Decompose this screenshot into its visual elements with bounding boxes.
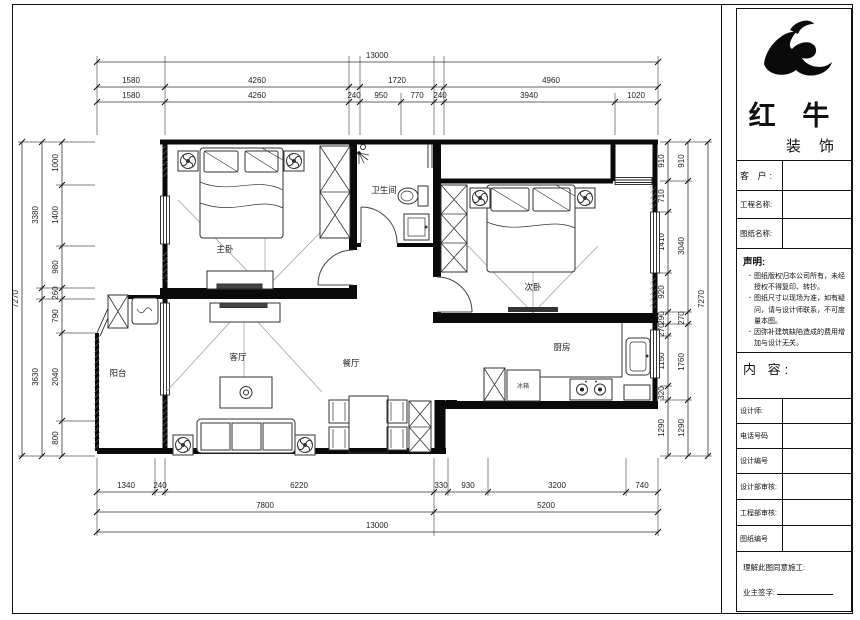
brand-name: 红 牛 — [737, 94, 851, 133]
balcony-fixtures — [108, 295, 158, 328]
dim-label: 1290 — [677, 419, 686, 437]
dim-label: 3380 — [31, 206, 40, 224]
content-label: 内 容: — [743, 362, 792, 377]
statement-item: 图纸尺寸以现场为准，如有疑问，请与设计师联系，不可度量本图。 — [749, 293, 847, 327]
room-label-kitchen: 厨房 — [553, 342, 570, 352]
dim-label: 3200 — [548, 481, 566, 490]
room-label-bath: 卫生间 — [371, 185, 397, 195]
bull-logo — [744, 15, 844, 87]
dim-label: 770 — [410, 91, 424, 100]
dim-label: 7270 — [11, 290, 20, 308]
kitchen-fixtures — [484, 323, 650, 401]
statement-title: 声明: — [743, 254, 847, 268]
field-eng-audit-label: 工程部审核: — [737, 500, 783, 525]
field-phone-label: 电话号码 — [737, 424, 783, 448]
owner-signature-field[interactable] — [777, 585, 833, 595]
dim-label: 740 — [635, 481, 649, 490]
drawing-sheet: 13000 1580 4260 1720 4960 1580 4260 240 … — [0, 0, 860, 620]
dim-label: 3630 — [31, 368, 40, 386]
dim-label: 270 — [677, 311, 686, 325]
field-sheet-no-label: 图纸编号 — [737, 526, 783, 551]
second-bedroom-furniture — [441, 185, 595, 312]
dim-label: 2040 — [51, 368, 60, 386]
fridge-label: 冰箱 — [517, 382, 529, 390]
statement-list: 图纸版权归本公司所有，未经授权不得复印、转抄。 图纸尺寸以现场为准，如有疑问，请… — [743, 271, 847, 349]
dim-label: 950 — [374, 91, 388, 100]
room-label-second: 次卧 — [524, 282, 542, 292]
dim-label: 930 — [461, 481, 475, 490]
title-block: 红 牛 装 饰 客 户: 工程名称: 图纸名称: 声明: 图纸版权归本公司所有，… — [736, 8, 852, 612]
dim-label: 260 — [51, 286, 60, 300]
brand-sub: 装 饰 — [737, 135, 851, 156]
floor-plan-canvas[interactable]: 13000 1580 4260 1720 4960 1580 4260 240 … — [0, 0, 722, 620]
room-label-balcony: 阳台 — [109, 368, 126, 378]
approval-line: 理解此图同意施工: — [743, 562, 847, 573]
dim-label: 3040 — [677, 237, 686, 255]
dim-label: 7270 — [697, 290, 706, 308]
dim-label: 910 — [677, 154, 686, 168]
field-customer-label: 客 户: — [737, 161, 783, 190]
dim-label: 1720 — [388, 76, 406, 85]
dim-label: 3940 — [520, 91, 538, 100]
dim-label: 240 — [347, 91, 361, 100]
dim-label: 1580 — [122, 91, 140, 100]
dim-label: 710 — [657, 189, 666, 203]
field-project-label: 工程名称: — [737, 191, 783, 218]
dimension-labels-bottom: 1340 240 6220 330 930 3200 740 7800 5200… — [117, 481, 649, 530]
dim-label: 240 — [153, 481, 167, 490]
dim-label: 920 — [657, 285, 666, 299]
dim-label: 6220 — [290, 481, 308, 490]
field-phone: 电话号码 — [737, 424, 851, 449]
dim-label: 4960 — [542, 76, 560, 85]
dim-label: 320 — [657, 386, 666, 400]
dim-label: 4260 — [248, 76, 266, 85]
dim-label: 1290 — [657, 419, 666, 437]
field-designer-label: 设计师: — [737, 399, 783, 423]
master-bedroom-furniture — [178, 146, 350, 289]
statement-item: 因弥补建筑缺陷造成的费用增加与设计无关。 — [749, 327, 847, 349]
field-eng-audit: 工程部审核: — [737, 500, 851, 526]
field-drawing: 图纸名称: — [737, 219, 851, 249]
dim-label: 4260 — [248, 91, 266, 100]
dim-label: 330 — [434, 481, 448, 490]
field-design-audit-label: 设计部审核: — [737, 474, 783, 499]
dim-label: 1760 — [677, 353, 686, 371]
dimension-labels-top: 13000 1580 4260 1720 4960 1580 4260 240 … — [122, 51, 645, 100]
dim-label: 800 — [51, 431, 60, 445]
field-designer: 设计师: — [737, 399, 851, 424]
dim-label: 1000 — [51, 154, 60, 172]
approval-box: 理解此图同意施工: 业主签字: — [737, 552, 851, 612]
statement-box: 声明: 图纸版权归本公司所有，未经授权不得复印、转抄。 图纸尺寸以现场为准，如有… — [737, 249, 851, 353]
dim-label: 5200 — [537, 501, 555, 510]
dim-label: 1020 — [627, 91, 645, 100]
dim-label: 790 — [51, 309, 60, 323]
room-label-living: 客厅 — [229, 352, 247, 362]
dim-label: 1400 — [51, 206, 60, 224]
dim-label: 240 — [433, 91, 447, 100]
dim-label: 1580 — [122, 76, 140, 85]
field-customer: 客 户: — [737, 161, 851, 191]
dim-label: 7800 — [256, 501, 274, 510]
statement-item: 图纸版权归本公司所有，未经授权不得复印、转抄。 — [749, 271, 847, 293]
dim-label: 13000 — [366, 51, 389, 60]
content-box: 内 容: — [737, 353, 851, 399]
dimension-labels-right: 910 710 1410 920 290 270 1150 320 1290 9… — [657, 154, 706, 437]
dim-label: 290 — [657, 311, 666, 325]
field-design-audit: 设计部审核: — [737, 474, 851, 500]
field-design-no-label: 设计编号 — [737, 449, 783, 473]
field-drawing-label: 图纸名称: — [737, 219, 783, 248]
dining-furniture — [329, 396, 431, 453]
field-sheet-no: 图纸编号 — [737, 526, 851, 552]
field-design-no: 设计编号 — [737, 449, 851, 474]
owner-sign-label: 业主签字: — [743, 588, 775, 597]
brand-area: 红 牛 装 饰 — [737, 9, 851, 161]
room-label-master: 主卧 — [216, 244, 234, 254]
room-label-dining: 餐厅 — [342, 358, 360, 368]
dim-label: 980 — [51, 260, 60, 274]
dimension-labels-left: 1000 1400 980 260 790 2040 800 3380 3630… — [11, 154, 60, 445]
dim-label: 13000 — [366, 521, 389, 530]
field-project: 工程名称: — [737, 191, 851, 219]
dim-label: 910 — [657, 154, 666, 168]
dim-label: 1340 — [117, 481, 135, 490]
